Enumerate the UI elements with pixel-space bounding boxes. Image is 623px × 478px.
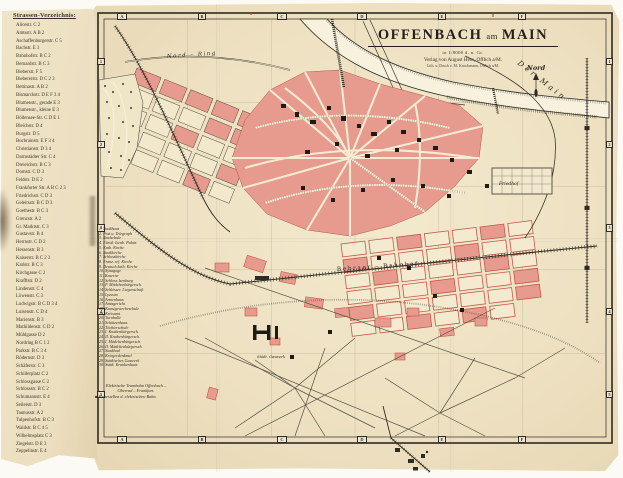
street-index-entry: Alicestr. C 2 (16, 22, 94, 30)
street-index-entry: Rödernstr. D 3 (16, 355, 94, 363)
street-index-entry: Bachstr. E 3 (16, 45, 94, 53)
street-index-entry: Waldstr. B C 4 5 (16, 425, 94, 433)
grid-number: 2 (97, 141, 104, 148)
street-index-entry: Gr. Marktstr. C 3 (16, 224, 94, 232)
grid-letter: D (357, 13, 366, 20)
grid-letter: C (277, 13, 286, 20)
street-index-entry: Kirchgasse C 2 (16, 270, 94, 278)
grid-letter: E (438, 13, 447, 20)
grid-letter: C (277, 436, 286, 443)
street-index-entry: Karlstr. B C 3 (16, 262, 94, 270)
tram-note-line3: ■ Haltestellen d. elektrischen Bahn. (95, 394, 177, 399)
street-index-entry: Grenzstr. A 2 (16, 216, 94, 224)
street-index-entry: Bleichstr. D 4 (16, 123, 94, 131)
grid-number: 4 (606, 308, 613, 315)
grid-letter: A (117, 13, 126, 20)
street-index-entry: Hessenstr. B 3 (16, 247, 94, 255)
legend-entry: 30. Städt. Krankenhaus (99, 363, 173, 368)
street-index-entry: Luisenstr. C D 4 (16, 309, 94, 317)
street-index-entry: Krafftstr. D 2 (16, 278, 94, 286)
grid-letter: E (438, 436, 447, 443)
street-index-entry: Ludwigstr. B C D 3 4 (16, 301, 94, 309)
grid-letters-bottom: ABCDEF (82, 436, 562, 443)
street-index-entry: Bieberstr. F 5 (16, 69, 94, 77)
street-index-entry: Gustavstr. B 4 (16, 231, 94, 239)
label-nord-ring: Nord – Ring (166, 51, 217, 61)
street-index-entry: Nordring B C 1 2 (16, 340, 94, 348)
street-index-entry: Mathildenstr. C D 2 (16, 324, 94, 332)
street-index-entry: Zeppelinstr. E 4 (16, 448, 94, 456)
grid-numbers-right: 12345 (605, 20, 614, 436)
street-index-entry: Löwenstr. C 3 (16, 293, 94, 301)
street-index-entry: Biebererstr. D C 2 3 (16, 76, 94, 84)
street-index-entry: Frankfurter Str. A B C 2 3 (16, 185, 94, 193)
grid-number: 3 (606, 224, 613, 231)
grid-letter: B (198, 13, 207, 20)
railway-east-line (585, 58, 590, 323)
street-index-entry: Seilerstr. D 3 (16, 402, 94, 410)
street-index-entry: Geleitsstr. B C D 3 (16, 200, 94, 208)
grid-number: 1 (606, 58, 613, 65)
red-speck (492, 14, 494, 17)
legend: 1. Stadthaus2. Post u. Telegraph3. Reals… (99, 227, 173, 368)
street-index-entry: Herrnstr. C D 2 (16, 239, 94, 247)
street-index-entry: Mühlgasse D 2 (16, 332, 94, 340)
grid-letter: F (518, 436, 527, 443)
street-index-entry: Buchrainstr. E F 3 4 (16, 138, 94, 146)
street-index-entry: Parkstr. B C 3 4 (16, 348, 94, 356)
nord-ring-road (125, 57, 290, 70)
street-index-entry: Kaiserstr. B C 2 3 (16, 255, 94, 263)
street-index-entry: Schlossstr. B C 2 (16, 386, 94, 394)
street-index-entry: Taunusstr. A 2 (16, 410, 94, 418)
street-index-entry: Aschaffenburgerstr. C 5 (16, 38, 94, 46)
grid-number: 2 (606, 141, 613, 148)
street-index-entry: Schlossgasse C 2 (16, 379, 94, 387)
street-index-entry: Bettinastr. A B 2 (16, 84, 94, 92)
tram-stop-symbol: ■ (95, 394, 97, 399)
grid-letter: D (357, 436, 366, 443)
street-index-entry: Goethestr. B C 3 (16, 208, 94, 216)
street-index-entry: Christianstr. D 3 4 (16, 146, 94, 154)
street-index-entry: Böllensee-Str. C D E 1 (16, 115, 94, 123)
red-speck (250, 12, 252, 15)
label-gaswerk: Städt. Gaswerk (257, 355, 285, 359)
street-index-entry: Feldstr. D E 2 (16, 177, 94, 185)
publisher: Verlag von August Hess, Offbch a/M. (368, 57, 558, 63)
street-index-entry: Bismarckstr. D E F 3 4 (16, 92, 94, 100)
street-index-entry: Amtsstr. A B 2 (16, 30, 94, 38)
street-index-entry: Friedrichstr. C D 3 (16, 193, 94, 201)
city-map: Nord Nord – Ring Der Main Bebraer – Bahn… (95, 8, 618, 474)
title-block: OFFENBACH am MAIN in 1/8000 d. n. Gr. Ve… (368, 26, 558, 68)
grid-letter: A (117, 436, 126, 443)
grid-letter: B (198, 436, 207, 443)
street-index-entry: Blumenstr., gerade E 3 (16, 100, 94, 108)
street-index-title: Strassen-Verzeichnis: (13, 12, 76, 19)
fold-gap-shadow (88, 196, 97, 246)
street-index-entry: Schumannstr. E 4 (16, 394, 94, 402)
street-index-entry: Blumenstr., kleine E 3 (16, 107, 94, 115)
tram-note: Elektrische Trambahn Offenbach – Oberrad… (95, 383, 177, 399)
label-friedhof: Friedhof (498, 181, 520, 187)
map-title: OFFENBACH am MAIN (368, 26, 558, 47)
map-title-connector: am (486, 31, 497, 41)
grid-letter: F (518, 13, 527, 20)
cemetery (492, 168, 552, 194)
street-index-entry: Schäferstr. C 3 (16, 363, 94, 371)
street-index-entry: Dreieichstr. B C 3 (16, 162, 94, 170)
street-index-entry: Domstr. C D 3 (16, 169, 94, 177)
torn-edge-shadow (0, 190, 11, 252)
street-index-entry: Bahnhofstr. B C 2 (16, 53, 94, 61)
map-title-city: OFFENBACH (378, 27, 483, 43)
street-index-list: Alicestr. C 2Amtsstr. A B 2Aschaffenburg… (16, 22, 94, 456)
street-index-entry: Bernardstr. B C 3 (16, 61, 94, 69)
street-index-entry: Schillerplatz C 2 (16, 371, 94, 379)
map-scale: in 1/8000 d. n. Gr. (368, 50, 558, 55)
street-index-entry: Burgstr. D 5 (16, 131, 94, 139)
map-title-river: MAIN (502, 27, 548, 43)
city-blocks-east (341, 221, 543, 337)
grid-letters-top: ABCDEF (82, 13, 562, 20)
grid-number: 5 (606, 391, 613, 398)
street-index-entry: Lindenstr. C 4 (16, 286, 94, 294)
street-index-entry: Tulpenhofstr. B C 3 (16, 417, 94, 425)
street-index-entry: Darmstädter Str. C 4 (16, 154, 94, 162)
street-index-entry: Marienstr. B 3 (16, 317, 94, 325)
printer: Lith. u. Druck v. M. Knochmann, Offbch a… (368, 64, 558, 68)
tram-note-stops: Haltestellen d. elektrischen Bahn. (99, 394, 157, 399)
grid-number: 1 (97, 58, 104, 65)
